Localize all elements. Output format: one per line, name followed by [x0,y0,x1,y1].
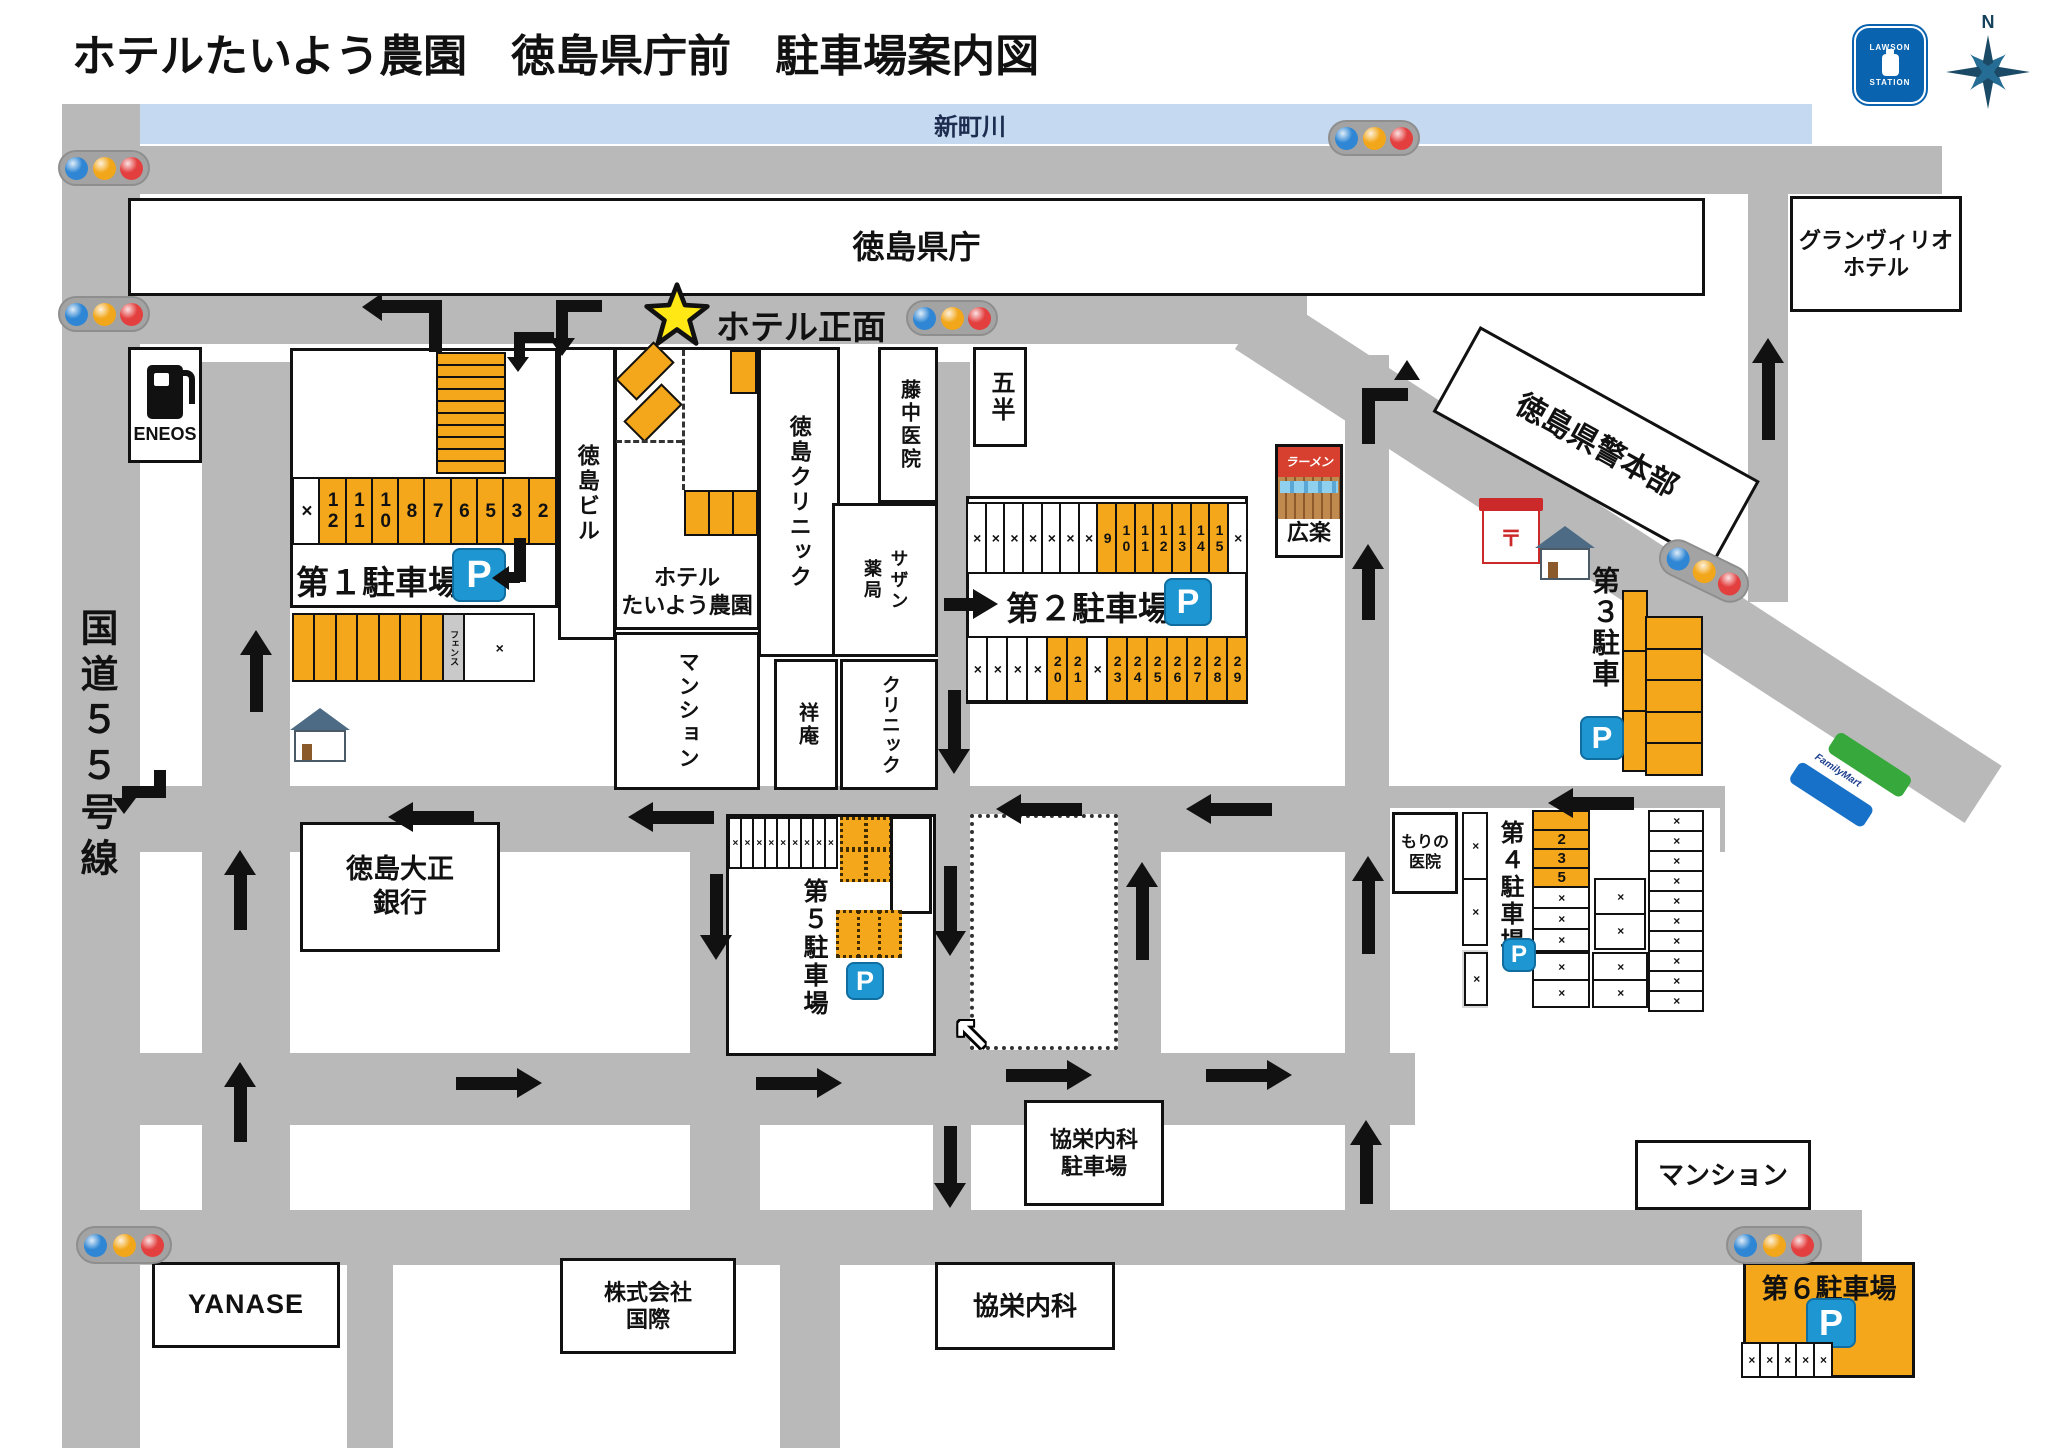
parking-space: × [1462,878,1488,946]
parking5-p-icon: P [846,962,884,1000]
road-v-left-upper [202,362,290,788]
building-eneos: ENEOS [128,347,202,463]
parking-space [436,460,506,474]
parking4-mid-col: ×× [1594,878,1646,950]
parking-space [399,613,423,682]
traffic-light-icon [1328,120,1420,156]
shoan-label: 祥庵 [794,702,819,748]
parking-space [1645,742,1703,776]
turn-arrow-p1 [494,538,534,600]
building-tokushima-clinic: 徳島クリニック [758,347,840,657]
parking5-dashed-top1 [840,817,892,850]
parking-space: × [1462,812,1488,880]
yanase-label: YANASE [188,1288,304,1322]
river-label: 新町川 [934,107,1006,142]
ramen-sign-icon: ラーメン [1278,447,1340,477]
hotel-dashed-path-h [616,440,682,443]
parking-space [356,613,380,682]
parking-space [1645,616,1703,650]
bank-label-2: 銀行 [373,887,427,921]
parking-space: × [1532,928,1590,952]
parking2-top-row: ×××××××9101112131415× [966,502,1248,574]
hotel-label-2: たいよう農園 [621,592,753,620]
traffic-light-icon [76,1226,172,1264]
parking-space: 11 [345,477,374,545]
parking-space: × [1594,913,1646,950]
parking1-main-row: ×121110876532 [292,477,557,545]
turn-arrow-up-left [366,292,446,356]
building-mansion-center: マンション [614,632,760,790]
parking-space [878,910,902,958]
arrow-up [1352,856,1384,954]
parking6-p-icon: P [1806,1298,1856,1348]
parking-space: 10 [371,477,400,545]
road-stub-2 [780,1265,840,1448]
parking-space [292,613,316,682]
parking4-p-icon: P [1502,938,1536,972]
arrow-right [1206,1058,1292,1092]
eneos-label: ENEOS [133,423,196,446]
dotted-lot [970,814,1118,1050]
parking-space: フェンス [442,613,466,682]
granvrio-label-2: ホテル [1843,254,1909,282]
arrow-up [224,1062,256,1142]
station-label: STATION [1870,78,1911,87]
parking-space: 5 [476,477,505,545]
hotel-front-label: ホテル正面 [716,300,886,349]
parking-space: 29 [1226,636,1248,702]
parking-space: × [1227,502,1248,574]
parking-space [857,910,881,958]
granvrio-label-1: グランヴィリオ [1799,227,1953,255]
parking1-lower-row: フェンス× [292,613,535,682]
parking-space: × [463,613,535,682]
parking2-label: 第２駐車場 [1006,582,1171,630]
house-icon-1 [288,708,352,762]
gas-pump-icon [147,365,183,419]
fujinaka-label: 藤中医院 [896,379,921,471]
parking-space [1645,648,1703,682]
parking4-gray-cell: × [1464,952,1488,1006]
building-kyoei: 協栄内科 [935,1262,1115,1350]
parking-space [836,910,860,958]
sazan-label-2: 薬局 [861,559,884,601]
parking4-orange-col: 235 [1532,810,1590,888]
arrow-left [996,792,1082,826]
parking-space: × [1648,990,1704,1012]
kyoei-label: 協栄内科 [973,1290,1077,1323]
parking-space: 12 [318,477,347,545]
parking5-sub-box [890,816,932,914]
arrow-parking2-entry [944,588,998,620]
tokushima-biru-label: 徳島ビル [573,444,601,544]
parking-space: × [1594,878,1646,915]
parking-space [865,849,892,882]
parking4-low-a: ×× [1532,952,1590,1008]
parking-space [840,817,867,850]
parking4-label: 第４駐車場 [1492,820,1527,956]
building-sazan: 薬局 サザン [832,503,938,657]
parking-space: × [1532,952,1590,981]
arrow-right [756,1066,842,1100]
parking-space [1645,679,1703,713]
turn-arrow-parking1-entry [504,330,556,376]
road-top [62,146,1942,194]
building-mansion-se: マンション [1635,1140,1811,1210]
gohan-label: 五半 [985,370,1015,424]
arrow-up [224,850,256,930]
turn-arrow-up-right [1356,356,1420,448]
arrow-up [1752,338,1784,440]
arrow-left [628,800,714,834]
parking-space: × [1532,979,1590,1008]
parking-space: 7 [423,477,452,545]
parking6-x-row: ××××× [1741,1342,1833,1378]
arrow-right [456,1066,542,1100]
arrow-up [1126,862,1158,960]
parking-space: 8 [397,477,426,545]
parking3-colB [1645,616,1703,776]
koraku-label: 広楽 [1287,519,1331,547]
building-clinic: クリニック [840,659,938,790]
house-icon-2 [1534,526,1596,580]
parking3-p-icon: P [1580,716,1624,760]
clinic-label: クリニック [877,675,901,775]
compass-north-label: N [1944,12,2032,33]
building-yanase: YANASE [152,1262,340,1348]
building-tokushima-biru: 徳島ビル [558,347,616,640]
arrow-up [1350,1120,1382,1204]
parking-space [1645,711,1703,745]
road-h5 [62,1210,1862,1265]
post-office-icon: 〒 [1482,498,1540,564]
parking4-right-col: ×××××××××× [1648,810,1704,1012]
parking-space: 6 [450,477,479,545]
building-morino: もりの 医院 [1392,812,1458,894]
arrow-left [1186,792,1272,826]
parking1-stack [436,352,506,474]
hotel-mid-spaces [684,490,758,536]
parking-space: × [292,477,321,545]
arrow-left [388,800,474,834]
parking-guide-map: ホテルたいよう農園 徳島県庁前 駐車場案内図 新町川 国道５５号線 徳島県庁 グ… [0,0,2047,1448]
traffic-light-icon [58,296,150,332]
hotel-dashed-path-v [682,350,685,490]
building-kokusai: 株式会社 国際 [560,1258,736,1354]
arrow-down [934,1126,966,1208]
parking5-x-row: ××××××××× [728,817,838,869]
parking5-dashed-top2 [840,849,892,882]
road-stub-1 [347,1265,393,1448]
milk-jug-icon [1882,54,1899,76]
hotel-label-1: ホテル [654,564,720,592]
sazan-label-1: サザン [887,549,910,612]
parking-space: × [1532,886,1590,910]
building-gohan: 五半 [973,347,1027,447]
hotel-space-top [730,350,757,394]
kyoei-parking-label-1: 協栄内科 [1050,1126,1138,1154]
morino-label-1: もりの [1401,833,1449,853]
parking-space: × [1464,952,1488,1006]
ramen-storefront-icon [1278,477,1340,519]
lawson-station-icon: LAWSON STATION [1856,28,1924,102]
arrow-up [240,630,272,712]
parking-space: 2 [528,477,557,545]
building-granvrio: グランヴィリオ ホテル [1790,196,1962,312]
arrow-right [1006,1058,1092,1092]
parking-space: × [1813,1342,1833,1378]
mansion-se-label: マンション [1658,1159,1788,1192]
arrow-down [934,866,966,956]
parking4-below-orange: ××× [1532,886,1590,952]
route55-label: 国道５５号線 [68,608,123,918]
arrow-down [938,690,970,774]
kencho-label: 徳島県庁 [852,227,980,267]
building-kyoei-parking: 協栄内科 駐車場 [1024,1100,1164,1206]
kokusai-label-2: 国際 [626,1306,670,1334]
building-shoan: 祥庵 [774,659,838,790]
parking-space [420,613,444,682]
river-shinmachi: 新町川 [128,104,1812,144]
parking-space [865,817,892,850]
mansion-center-label: マンション [674,651,700,771]
parking2-p-icon: P [1164,578,1212,626]
parking1-label: 第１駐車場 [296,556,461,604]
tokushima-clinic-label: 徳島クリニック [785,415,813,590]
parking-space [313,613,337,682]
parking5-dashed-low [836,910,902,958]
parking-space [378,613,402,682]
parking-space [335,613,359,682]
parking4-left-col: ×× [1462,812,1488,946]
parking4-low-b: ×× [1592,952,1648,1008]
turn-arrow-down-left [548,296,606,360]
parking-space: × [1592,979,1648,1008]
kokusai-label-1: 株式会社 [604,1279,692,1307]
building-fujinaka: 藤中医院 [878,347,938,503]
hotel-front-star-icon [644,280,710,350]
parking-space: × [824,817,838,869]
parking2-bottom-row: ××××2021×23242526272829 [966,636,1248,702]
morino-label-2: 医院 [1409,853,1441,873]
kyoei-parking-label-2: 駐車場 [1061,1153,1127,1181]
arrow-up [1352,544,1384,620]
parking-space: × [1532,907,1590,931]
map-title: ホテルたいよう農園 徳島県庁前 駐車場案内図 [72,20,1039,84]
parking3-label: 第３駐車 [1584,566,1624,726]
building-koraku: ラーメン 広楽 [1275,444,1343,558]
compass-rose-icon: N [1944,12,2032,112]
parking-space: 5 [1532,867,1590,888]
building-kencho: 徳島県庁 [128,198,1705,296]
parking-space: 3 [502,477,531,545]
traffic-light-icon [1726,1226,1822,1264]
arrow-left [1548,786,1634,820]
arrow-down [700,874,732,960]
nw-open-arrow-icon: ↖ [952,1012,991,1058]
bank-label-1: 徳島大正 [346,853,454,887]
traffic-light-icon [906,300,998,336]
parking-space: × [1592,952,1648,981]
turn-arrow-route55 [106,768,172,824]
parking5-label: 第５駐車場 [796,878,832,1028]
parking-space [840,849,867,882]
building-bank: 徳島大正 銀行 [300,822,500,952]
white-block-mid [1161,852,1345,1052]
traffic-light-icon [58,150,150,186]
